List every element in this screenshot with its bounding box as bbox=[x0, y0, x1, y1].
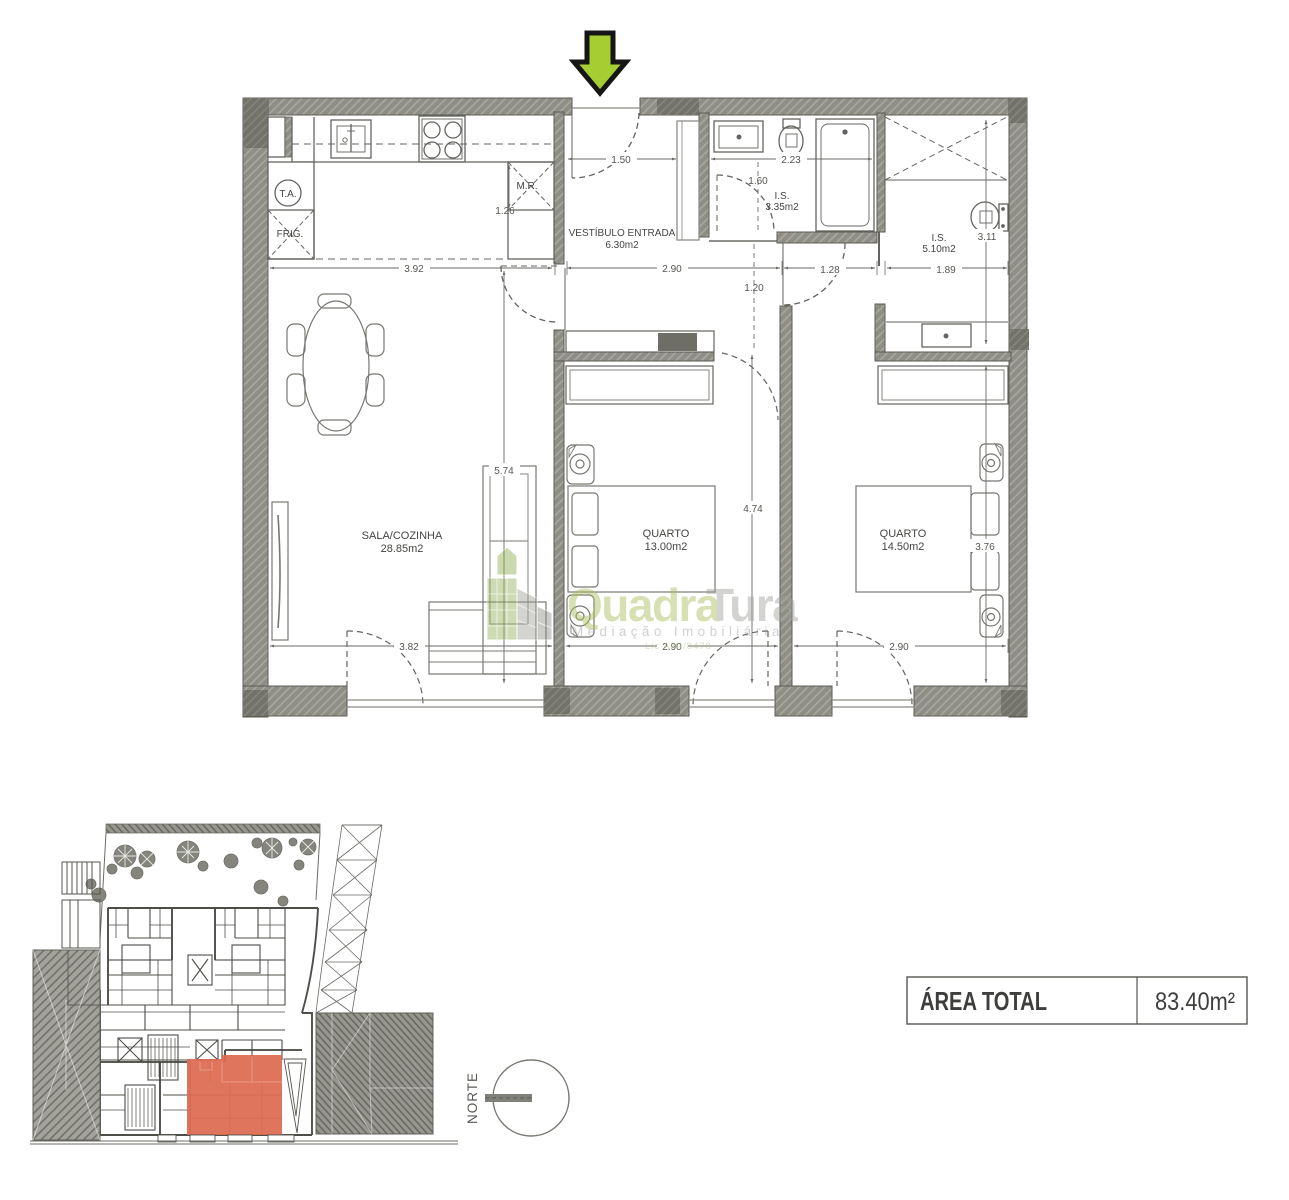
svg-text:13.00m2: 13.00m2 bbox=[645, 541, 688, 553]
svg-text:2.90: 2.90 bbox=[662, 264, 682, 275]
svg-text:1.26: 1.26 bbox=[495, 206, 515, 217]
svg-text:14.50m2: 14.50m2 bbox=[882, 541, 925, 553]
svg-text:3.82: 3.82 bbox=[399, 642, 419, 653]
svg-text:83.40m²: 83.40m² bbox=[1155, 988, 1235, 1016]
svg-text:2.23: 2.23 bbox=[781, 155, 801, 166]
svg-text:1.60: 1.60 bbox=[748, 176, 768, 187]
svg-text:ÁREA TOTAL: ÁREA TOTAL bbox=[920, 986, 1047, 1016]
svg-text:I.S.: I.S. bbox=[774, 191, 789, 202]
svg-text:FRIG.: FRIG. bbox=[277, 229, 304, 240]
svg-text:1.89: 1.89 bbox=[936, 265, 956, 276]
svg-text:I.S.: I.S. bbox=[931, 233, 946, 244]
svg-text:3.35m2: 3.35m2 bbox=[765, 202, 799, 213]
svg-text:T.A.: T.A. bbox=[279, 189, 296, 200]
svg-text:SALA/COZINHA: SALA/COZINHA bbox=[362, 530, 443, 542]
svg-text:Mediação Imobiliária: Mediação Imobiliária bbox=[572, 624, 784, 639]
svg-text:28.85m2: 28.85m2 bbox=[381, 543, 424, 555]
svg-text:3.76: 3.76 bbox=[975, 542, 995, 553]
svg-text:6.30m2: 6.30m2 bbox=[605, 240, 639, 251]
svg-text:QUARTO: QUARTO bbox=[880, 528, 927, 540]
svg-text:QUARTO: QUARTO bbox=[643, 528, 690, 540]
svg-text:1.28: 1.28 bbox=[820, 265, 840, 276]
svg-text:M.R.: M.R. bbox=[516, 181, 537, 192]
svg-text:3.11: 3.11 bbox=[978, 232, 997, 243]
svg-text:2.90: 2.90 bbox=[889, 642, 909, 653]
svg-text:5.74: 5.74 bbox=[494, 466, 514, 477]
svg-text:5.10m2: 5.10m2 bbox=[922, 244, 956, 255]
svg-text:4.74: 4.74 bbox=[743, 504, 763, 515]
svg-text:Lic AMI/8478: Lic AMI/8478 bbox=[645, 641, 712, 652]
svg-text:1.50: 1.50 bbox=[611, 155, 631, 166]
svg-text:1.20: 1.20 bbox=[744, 283, 764, 294]
svg-text:NORTE: NORTE bbox=[465, 1072, 480, 1124]
svg-text:VESTÍBULO ENTRADA: VESTÍBULO ENTRADA bbox=[569, 226, 676, 239]
svg-text:3.92: 3.92 bbox=[404, 264, 424, 275]
